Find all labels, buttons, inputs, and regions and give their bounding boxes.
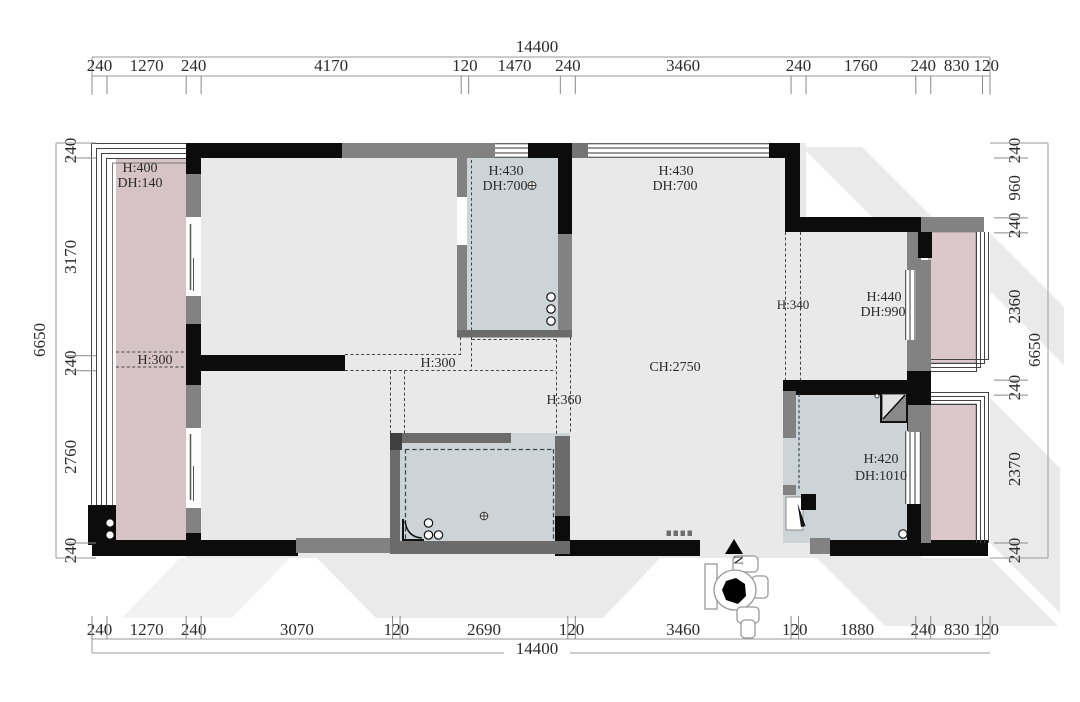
svg-text:4170: 4170	[314, 56, 348, 75]
svg-text:240: 240	[1005, 538, 1024, 564]
svg-text:240: 240	[61, 538, 80, 564]
svg-text:N: N	[731, 555, 746, 565]
svg-text:120: 120	[974, 620, 1000, 639]
svg-text:3460: 3460	[666, 56, 700, 75]
svg-text:120: 120	[974, 56, 1000, 75]
svg-text:3170: 3170	[61, 240, 80, 274]
svg-text:120: 120	[782, 620, 808, 639]
svg-text:120: 120	[452, 56, 478, 75]
svg-text:240: 240	[181, 56, 207, 75]
svg-text:240: 240	[61, 351, 80, 377]
svg-text:H:300: H:300	[421, 356, 456, 371]
svg-text:240: 240	[61, 138, 80, 164]
svg-text:H:430: H:430	[489, 164, 524, 179]
svg-text:DH:140: DH:140	[117, 176, 162, 191]
svg-text:240: 240	[911, 620, 937, 639]
svg-text:2360: 2360	[1005, 290, 1024, 324]
svg-text:14400: 14400	[516, 639, 559, 658]
svg-text:3070: 3070	[280, 620, 314, 639]
svg-text:3460: 3460	[666, 620, 700, 639]
svg-text:6650: 6650	[30, 323, 49, 357]
svg-text:DH:990: DH:990	[860, 305, 905, 320]
svg-text:120: 120	[559, 620, 585, 639]
svg-text:H:430: H:430	[659, 164, 694, 179]
svg-text:H:340: H:340	[777, 297, 810, 312]
svg-text:DH:700: DH:700	[482, 179, 527, 194]
svg-text:DH:1010: DH:1010	[855, 469, 907, 484]
svg-text:H:420: H:420	[864, 452, 899, 467]
svg-text:1880: 1880	[840, 620, 874, 639]
svg-text:240: 240	[87, 620, 113, 639]
svg-text:240: 240	[1005, 375, 1024, 401]
svg-text:240: 240	[1005, 213, 1024, 239]
svg-text:240: 240	[1005, 138, 1024, 164]
svg-text:2690: 2690	[467, 620, 501, 639]
svg-text:H:360: H:360	[547, 393, 582, 408]
svg-text:240: 240	[181, 620, 207, 639]
svg-text:830: 830	[944, 56, 970, 75]
svg-text:H:400: H:400	[123, 161, 158, 176]
svg-text:120: 120	[384, 620, 410, 639]
svg-text:240: 240	[555, 56, 581, 75]
svg-text:1760: 1760	[844, 56, 878, 75]
svg-text:240: 240	[786, 56, 812, 75]
svg-text:960: 960	[1005, 175, 1024, 201]
svg-text:1470: 1470	[497, 56, 531, 75]
svg-text:1270: 1270	[130, 620, 164, 639]
svg-text:2370: 2370	[1005, 452, 1024, 486]
svg-text:14400: 14400	[516, 37, 559, 56]
svg-text:1270: 1270	[130, 56, 164, 75]
svg-text:240: 240	[87, 56, 113, 75]
svg-text:240: 240	[911, 56, 937, 75]
svg-text:H:300: H:300	[138, 353, 173, 368]
svg-text:CH:2750: CH:2750	[649, 360, 700, 375]
svg-text:6650: 6650	[1025, 333, 1044, 367]
svg-text:2760: 2760	[61, 440, 80, 474]
svg-text:H:440: H:440	[867, 290, 902, 305]
svg-text:830: 830	[944, 620, 970, 639]
svg-text:DH:700: DH:700	[652, 179, 697, 194]
